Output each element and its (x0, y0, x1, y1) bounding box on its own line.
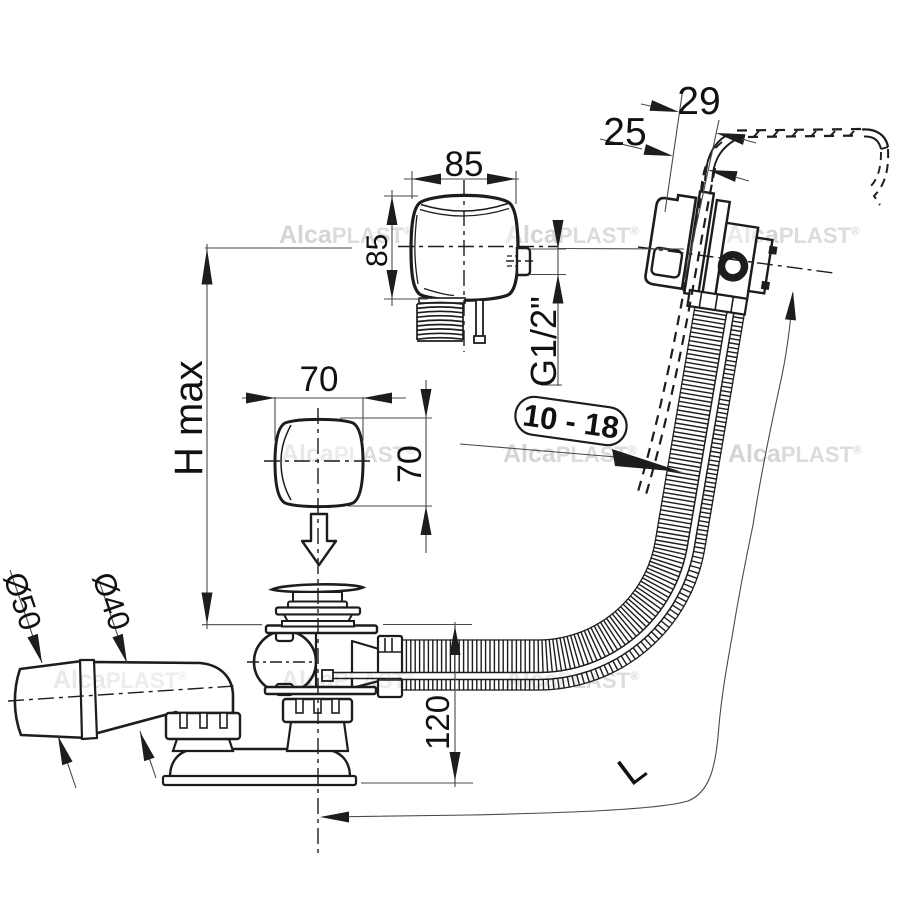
svg-text:AlcaPLAST®: AlcaPLAST® (505, 221, 639, 249)
svg-text:120: 120 (419, 695, 456, 750)
svg-text:AlcaPLAST®: AlcaPLAST® (505, 666, 639, 694)
svg-text:AlcaPLAST®: AlcaPLAST® (726, 221, 860, 249)
svg-text:29: 29 (677, 80, 720, 123)
svg-text:AlcaPLAST®: AlcaPLAST® (281, 666, 415, 694)
svg-text:AlcaPLAST®: AlcaPLAST® (281, 440, 415, 468)
svg-text:G1/2": G1/2" (523, 296, 564, 387)
svg-text:70: 70 (300, 360, 339, 399)
svg-text:AlcaPLAST®: AlcaPLAST® (53, 666, 187, 694)
svg-text:25: 25 (603, 111, 646, 154)
svg-text:AlcaPLAST®: AlcaPLAST® (728, 440, 862, 468)
svg-text:AlcaPLAST®: AlcaPLAST® (503, 440, 637, 468)
svg-text:AlcaPLAST®: AlcaPLAST® (279, 221, 413, 249)
svg-text:H max: H max (167, 360, 211, 476)
svg-text:85: 85 (445, 145, 484, 184)
